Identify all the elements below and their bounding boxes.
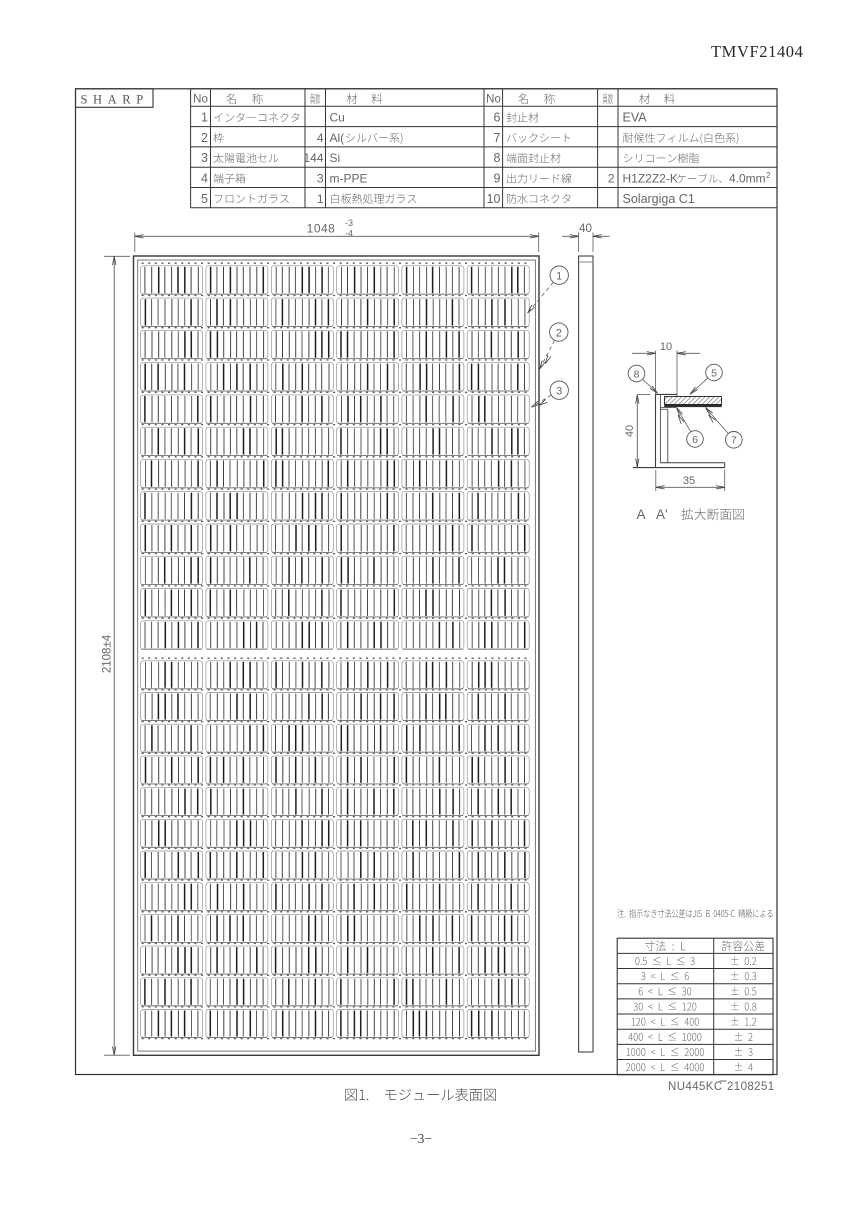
svg-text:2108251: 2108251	[727, 1081, 775, 1093]
svg-text:Al(: Al(	[330, 131, 345, 145]
svg-text:3: 3	[201, 151, 208, 165]
svg-text:3: 3	[317, 172, 324, 186]
svg-text:A': A'	[656, 507, 668, 522]
svg-text:2: 2	[201, 131, 208, 145]
svg-text:5: 5	[711, 367, 717, 379]
svg-text:Cu: Cu	[330, 111, 345, 125]
svg-text:−3−: −3−	[410, 1131, 432, 1146]
svg-text:10: 10	[660, 341, 672, 353]
svg-text:9: 9	[494, 172, 501, 186]
svg-text:A: A	[637, 507, 646, 522]
svg-text:7: 7	[731, 435, 737, 447]
svg-text:1048: 1048	[307, 222, 336, 236]
svg-text:Si: Si	[330, 151, 341, 165]
svg-text:No: No	[486, 94, 501, 106]
svg-text:6: 6	[494, 111, 501, 125]
svg-text:5: 5	[201, 192, 208, 206]
svg-text:7: 7	[494, 131, 501, 145]
svg-text:2: 2	[766, 171, 771, 180]
svg-text:3: 3	[556, 385, 562, 397]
svg-text:2: 2	[556, 327, 562, 339]
svg-text:EVA: EVA	[623, 111, 648, 125]
svg-text:4: 4	[201, 172, 208, 186]
svg-text:2: 2	[608, 172, 615, 186]
svg-text:2108±4: 2108±4	[102, 634, 114, 673]
svg-text:m-PPE: m-PPE	[330, 172, 368, 186]
svg-text:10: 10	[487, 192, 501, 206]
svg-text:TMVF21404: TMVF21404	[711, 42, 804, 61]
svg-text:144: 144	[303, 151, 323, 165]
svg-text:No: No	[193, 94, 208, 106]
svg-text:1: 1	[317, 192, 324, 206]
svg-text:SHARP: SHARP	[81, 93, 149, 107]
svg-text:-4: -4	[345, 229, 353, 239]
svg-text:6: 6	[692, 434, 698, 446]
svg-text:1: 1	[201, 111, 208, 125]
svg-text:8: 8	[494, 151, 501, 165]
svg-text:4.0mm: 4.0mm	[729, 172, 766, 186]
svg-text:8: 8	[634, 368, 640, 380]
svg-text:-3: -3	[345, 218, 353, 228]
svg-text:35: 35	[683, 475, 695, 487]
svg-text:40: 40	[624, 425, 636, 437]
svg-text:40: 40	[579, 223, 592, 235]
svg-text:Solargiga C1: Solargiga C1	[623, 192, 695, 206]
svg-text:1: 1	[556, 270, 562, 282]
svg-text:H1Z2Z2-K: H1Z2Z2-K	[623, 172, 678, 186]
svg-text:4: 4	[317, 131, 324, 145]
svg-text:NU445KC: NU445KC	[668, 1081, 723, 1093]
